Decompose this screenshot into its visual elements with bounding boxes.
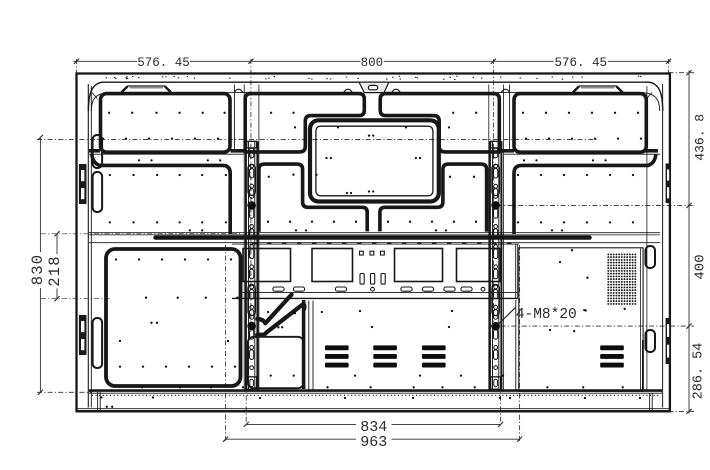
svg-text:218: 218 [46, 255, 64, 287]
svg-text:4-M8*20: 4-M8*20 [516, 307, 577, 323]
svg-text:576. 45: 576. 45 [137, 56, 190, 70]
svg-text:963: 963 [360, 434, 387, 451]
svg-text:576. 45: 576. 45 [555, 56, 608, 70]
svg-text:830: 830 [29, 254, 47, 286]
svg-text:436. 8: 436. 8 [693, 114, 708, 161]
svg-text:400: 400 [692, 254, 708, 279]
svg-text:800: 800 [361, 56, 384, 70]
svg-text:286. 54: 286. 54 [692, 343, 707, 400]
